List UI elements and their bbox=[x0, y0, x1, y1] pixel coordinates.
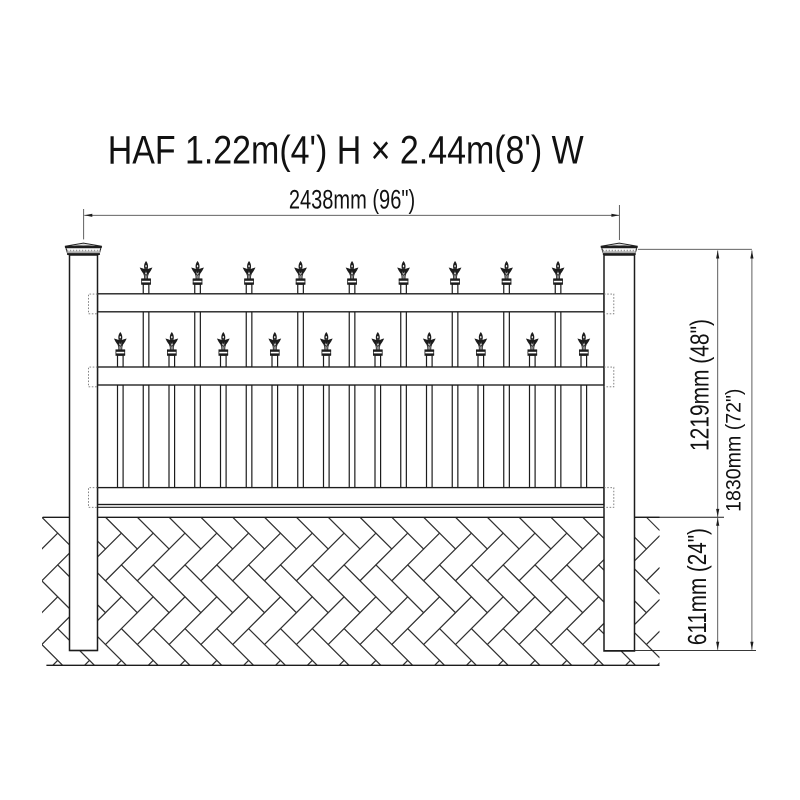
svg-text:HAF 1.22m(4') H × 2.44m(8') W: HAF 1.22m(4') H × 2.44m(8') W bbox=[108, 128, 584, 172]
svg-text:1830mm (72"): 1830mm (72") bbox=[722, 389, 745, 512]
svg-text:2438mm (96"): 2438mm (96") bbox=[289, 185, 415, 215]
svg-text:1219mm (48"): 1219mm (48") bbox=[684, 319, 714, 451]
svg-text:611mm (24"): 611mm (24") bbox=[682, 528, 712, 645]
